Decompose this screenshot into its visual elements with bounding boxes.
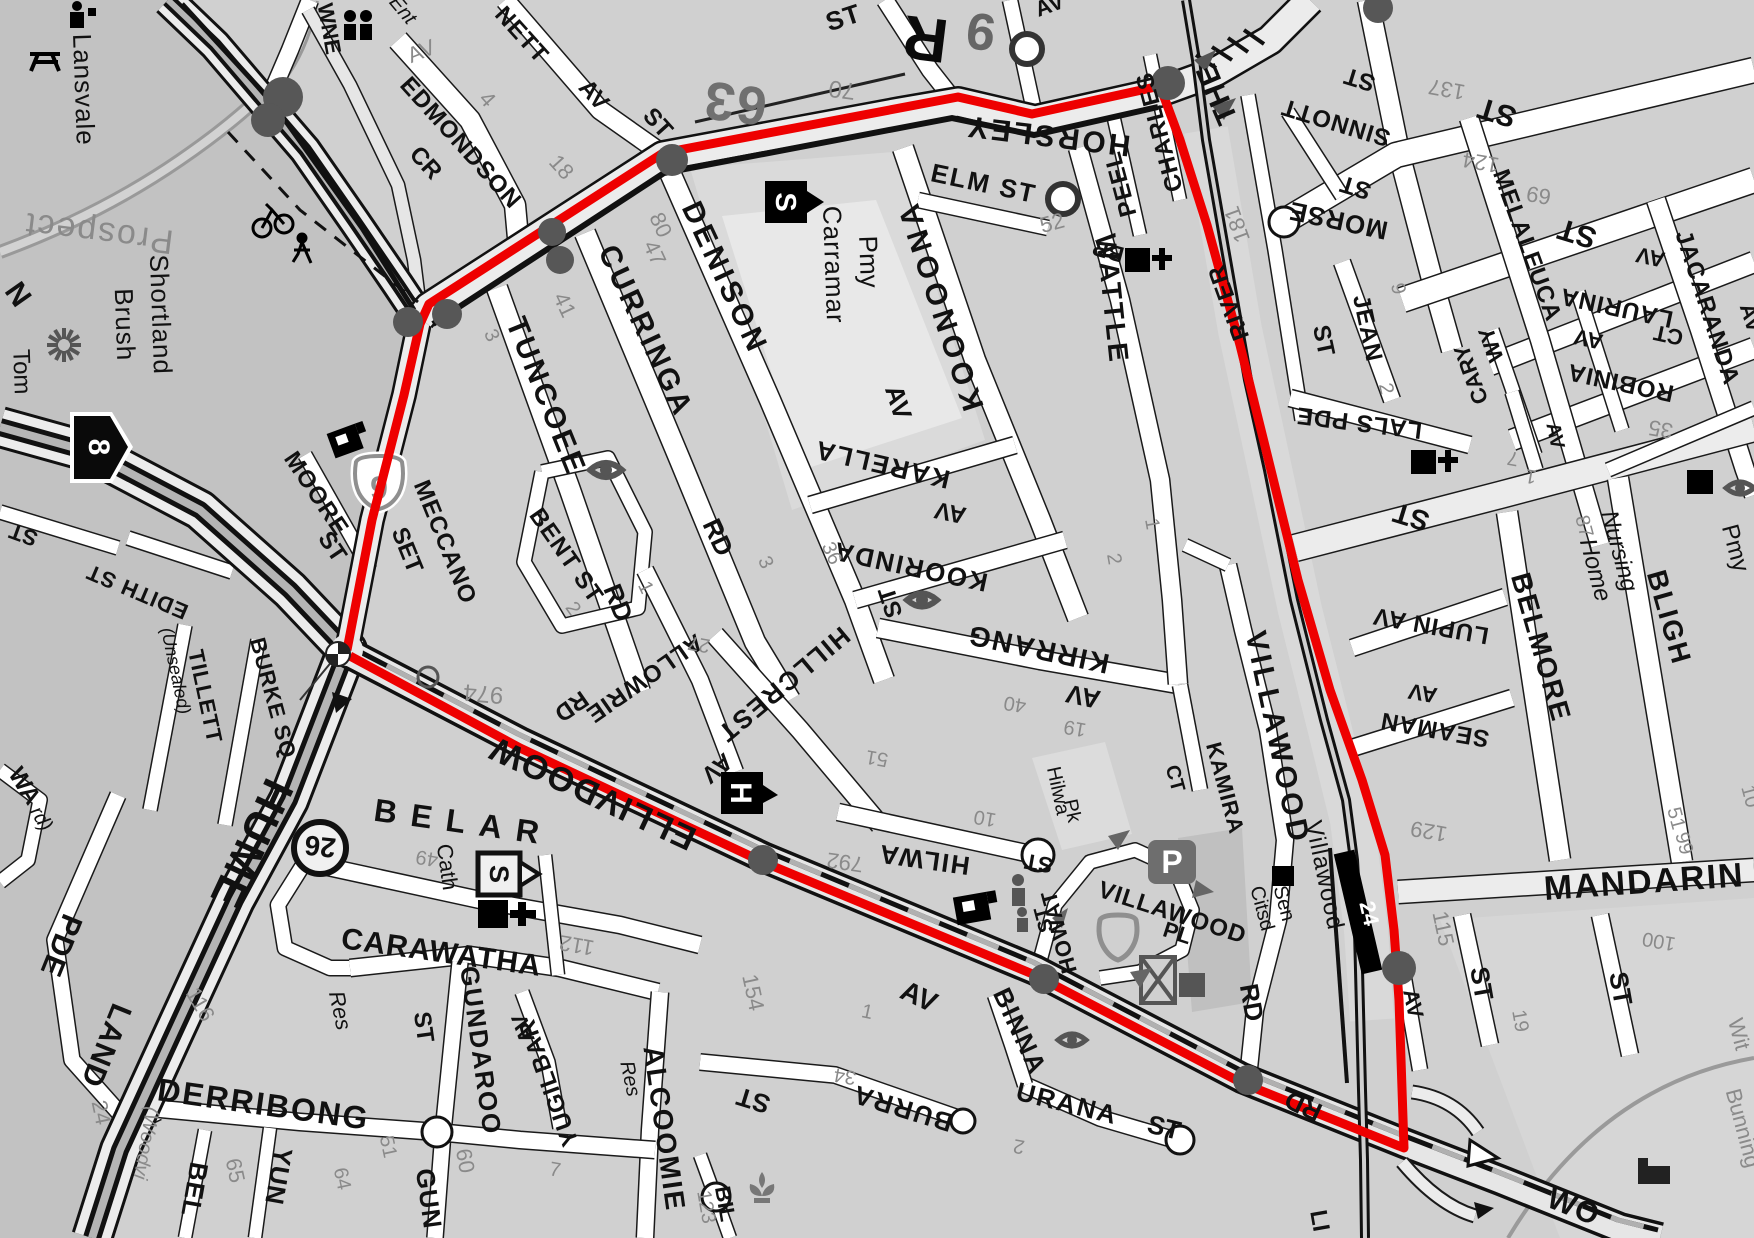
svg-text:19: 19: [1062, 715, 1088, 741]
svg-text:H: H: [724, 782, 757, 804]
svg-text:S: S: [484, 865, 514, 883]
svg-text:R: R: [899, 1, 952, 75]
svg-text:35: 35: [1646, 415, 1674, 444]
svg-text:69: 69: [1524, 181, 1552, 210]
svg-text:40: 40: [1002, 691, 1028, 717]
svg-text:51: 51: [375, 1134, 401, 1160]
svg-text:65: 65: [221, 1156, 251, 1185]
svg-text:63: 63: [699, 69, 770, 136]
svg-text:974: 974: [462, 678, 504, 708]
svg-text:Lansvale: Lansvale: [67, 33, 101, 146]
svg-text:AV: AV: [1406, 679, 1439, 709]
svg-text:ST: ST: [1464, 964, 1499, 1002]
svg-text:Tom: Tom: [7, 349, 36, 395]
svg-text:Brush: Brush: [109, 288, 142, 362]
svg-text:P: P: [1161, 844, 1182, 880]
svg-text:24: 24: [87, 1098, 117, 1127]
svg-text:34: 34: [832, 1063, 858, 1089]
svg-text:60: 60: [451, 1146, 480, 1174]
svg-text:ST: ST: [408, 1010, 439, 1044]
svg-text:64: 64: [329, 1166, 355, 1192]
svg-text:19: 19: [1507, 1008, 1533, 1034]
svg-text:Pmy: Pmy: [853, 235, 885, 288]
svg-text:Shortland: Shortland: [144, 254, 178, 375]
svg-text:26: 26: [303, 829, 337, 863]
svg-text:70: 70: [827, 74, 857, 104]
svg-text:RD: RD: [1234, 981, 1270, 1023]
svg-text:51: 51: [864, 745, 890, 771]
svg-text:792: 792: [825, 847, 865, 877]
svg-text:Carramar: Carramar: [817, 205, 851, 324]
svg-text:27: 27: [686, 631, 712, 657]
svg-text:S: S: [769, 192, 801, 211]
svg-text:10: 10: [972, 805, 998, 831]
svg-text:ST: ST: [1603, 969, 1638, 1007]
svg-text:ST: ST: [1022, 849, 1055, 879]
svg-text:8: 8: [82, 439, 115, 456]
